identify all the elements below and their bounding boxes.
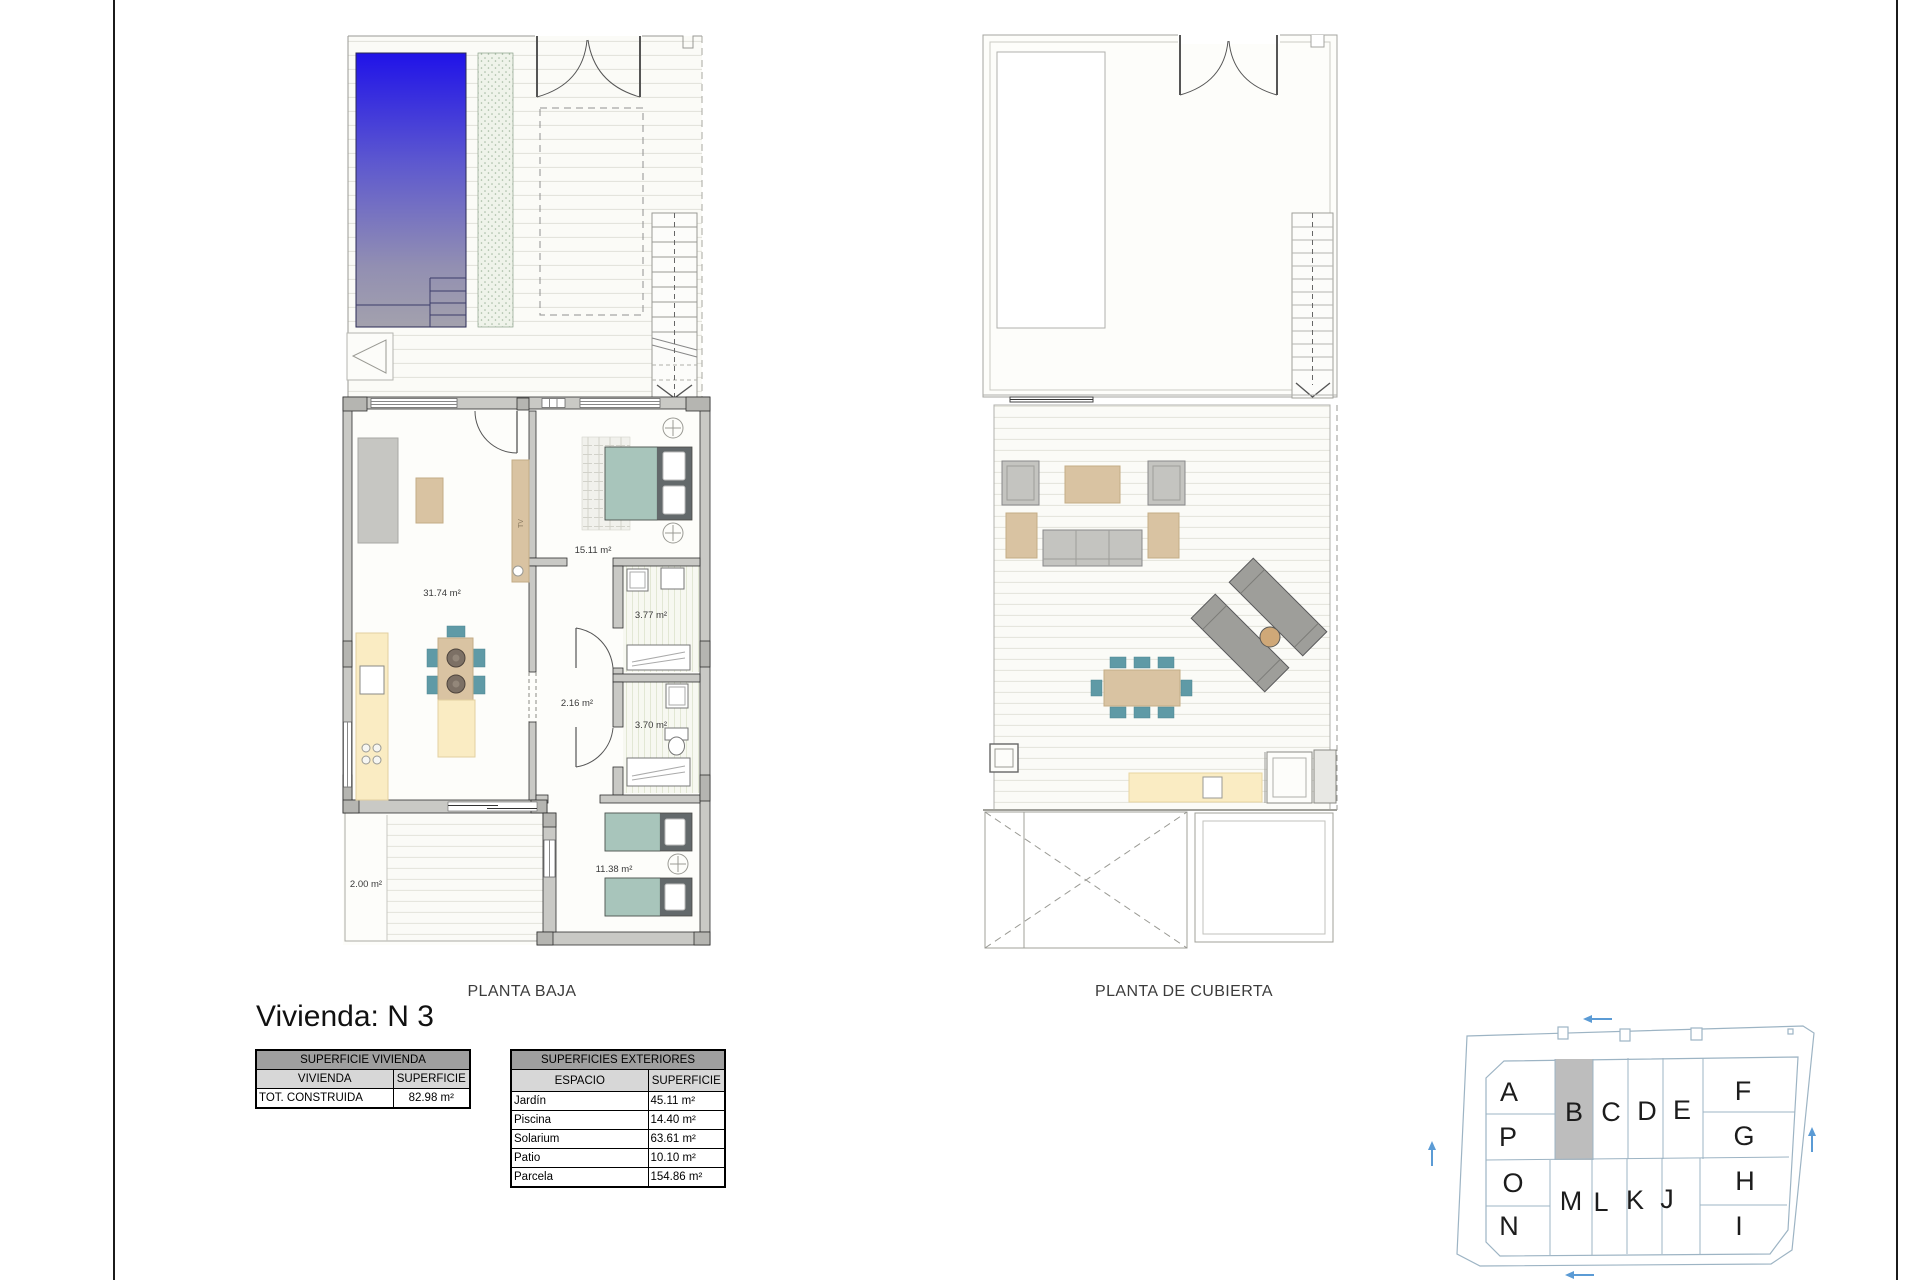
gravel-strip [478,53,513,327]
unit-b: B [1565,1097,1583,1127]
page-title: Vivienda: N 3 [256,1000,434,1034]
unit-l: L [1593,1187,1608,1217]
table-row: Parcela 154.86 m² [511,1168,725,1188]
unit-f: F [1735,1076,1752,1106]
table1-title: SUPERFICIE VIVIENDA [256,1050,470,1070]
unit-m: M [1560,1186,1583,1216]
row-solarium-value: 63.61 m² [648,1130,725,1149]
unit-k: K [1626,1185,1644,1215]
site-plan: A P B C D E F G O N M L K J H I [1425,1005,1825,1280]
planta-cubierta-drawing [975,20,1345,960]
sofa [358,438,398,543]
terrace-coffee-table [1065,466,1120,503]
swimming-pool [356,53,466,327]
row-solarium-name: Solarium [511,1130,648,1149]
sliding-door [448,802,537,811]
unit-e: E [1673,1095,1691,1125]
kitchen-sink [360,666,384,694]
table1-col2-header: SUPERFICIE [393,1070,470,1089]
planter-box [990,744,1018,772]
row-patio-value: 10.10 m² [648,1149,725,1168]
roof-upper-section [983,33,1337,402]
caption-planta-cubierta: PLANTA DE CUBIERTA [1054,983,1314,1001]
table-row: Solarium 63.61 m² [511,1130,725,1149]
table1-row-name: TOT. CONSTRUIDA [256,1089,393,1109]
row-jardin-name: Jardín [511,1092,648,1111]
table2-col1-header: ESPACIO [511,1070,648,1092]
pool-void-outline [997,52,1105,328]
roof-stairs [1292,213,1333,398]
table-row: Piscina 14.40 m² [511,1111,725,1130]
row-parcela-name: Parcela [511,1168,648,1188]
table2-title: SUPERFICIES EXTERIORES [511,1050,725,1070]
room-label-patio: 2.00 m² [350,879,382,890]
unit-d: D [1637,1096,1657,1126]
unit-c: C [1601,1097,1621,1127]
right-page-rule [1896,0,1898,1280]
terrace-sofa [1043,530,1142,566]
room-label-bedroom1: 15.11 m² [575,545,612,556]
garden-stairs [652,213,697,400]
lower-roofs [983,810,1337,948]
table-superficie-vivienda: SUPERFICIE VIVIENDA VIVIENDA SUPERFICIE … [255,1049,471,1109]
table-row: Jardín 45.11 m² [511,1092,725,1111]
planta-baja-drawing: TV [330,20,720,960]
unit-n: N [1499,1211,1519,1241]
row-patio-name: Patio [511,1149,648,1168]
side-table [1260,627,1280,647]
room-label-bath1: 3.77 m² [635,610,667,621]
room-label-bath2: 3.70 m² [635,720,667,731]
unit-h: H [1735,1166,1755,1196]
terrace-dining-table [1104,670,1180,706]
unit-o: O [1502,1168,1523,1198]
table1-col1-header: VIVIENDA [256,1070,393,1089]
outdoor-counter [1129,773,1262,802]
unit-g: G [1733,1121,1754,1151]
room-label-living: 31.74 m² [423,588,461,599]
caption-planta-baja: PLANTA BAJA [392,983,652,1001]
unit-j: J [1660,1184,1674,1214]
unit-i: I [1735,1211,1743,1241]
pool-access-marker [347,333,393,380]
room-label-hall: 2.16 m² [561,698,593,709]
table-superficies-exteriores: SUPERFICIES EXTERIORES ESPACIO SUPERFICI… [510,1049,726,1188]
unit-p: P [1499,1122,1517,1152]
row-piscina-name: Piscina [511,1111,648,1130]
table1-row-value: 82.98 m² [393,1089,470,1109]
row-parcela-value: 154.86 m² [648,1168,725,1188]
kitchen-island [438,700,475,757]
left-page-rule [113,0,115,1280]
table2-col2-header: SUPERFICIE [648,1070,725,1092]
coffee-table [416,478,443,523]
room-label-bedroom2: 11.38 m² [596,864,633,875]
tv-label: TV [518,519,525,528]
row-piscina-value: 14.40 m² [648,1111,725,1130]
table-row: TOT. CONSTRUIDA 82.98 m² [256,1089,470,1109]
unit-a: A [1500,1077,1518,1107]
outdoor-sink [1203,777,1222,798]
row-jardin-value: 45.11 m² [648,1092,725,1111]
kitchen-counter [356,633,388,800]
patio-area [345,813,543,943]
plan-sheet: TV [0,0,1920,1280]
table-row: Patio 10.10 m² [511,1149,725,1168]
